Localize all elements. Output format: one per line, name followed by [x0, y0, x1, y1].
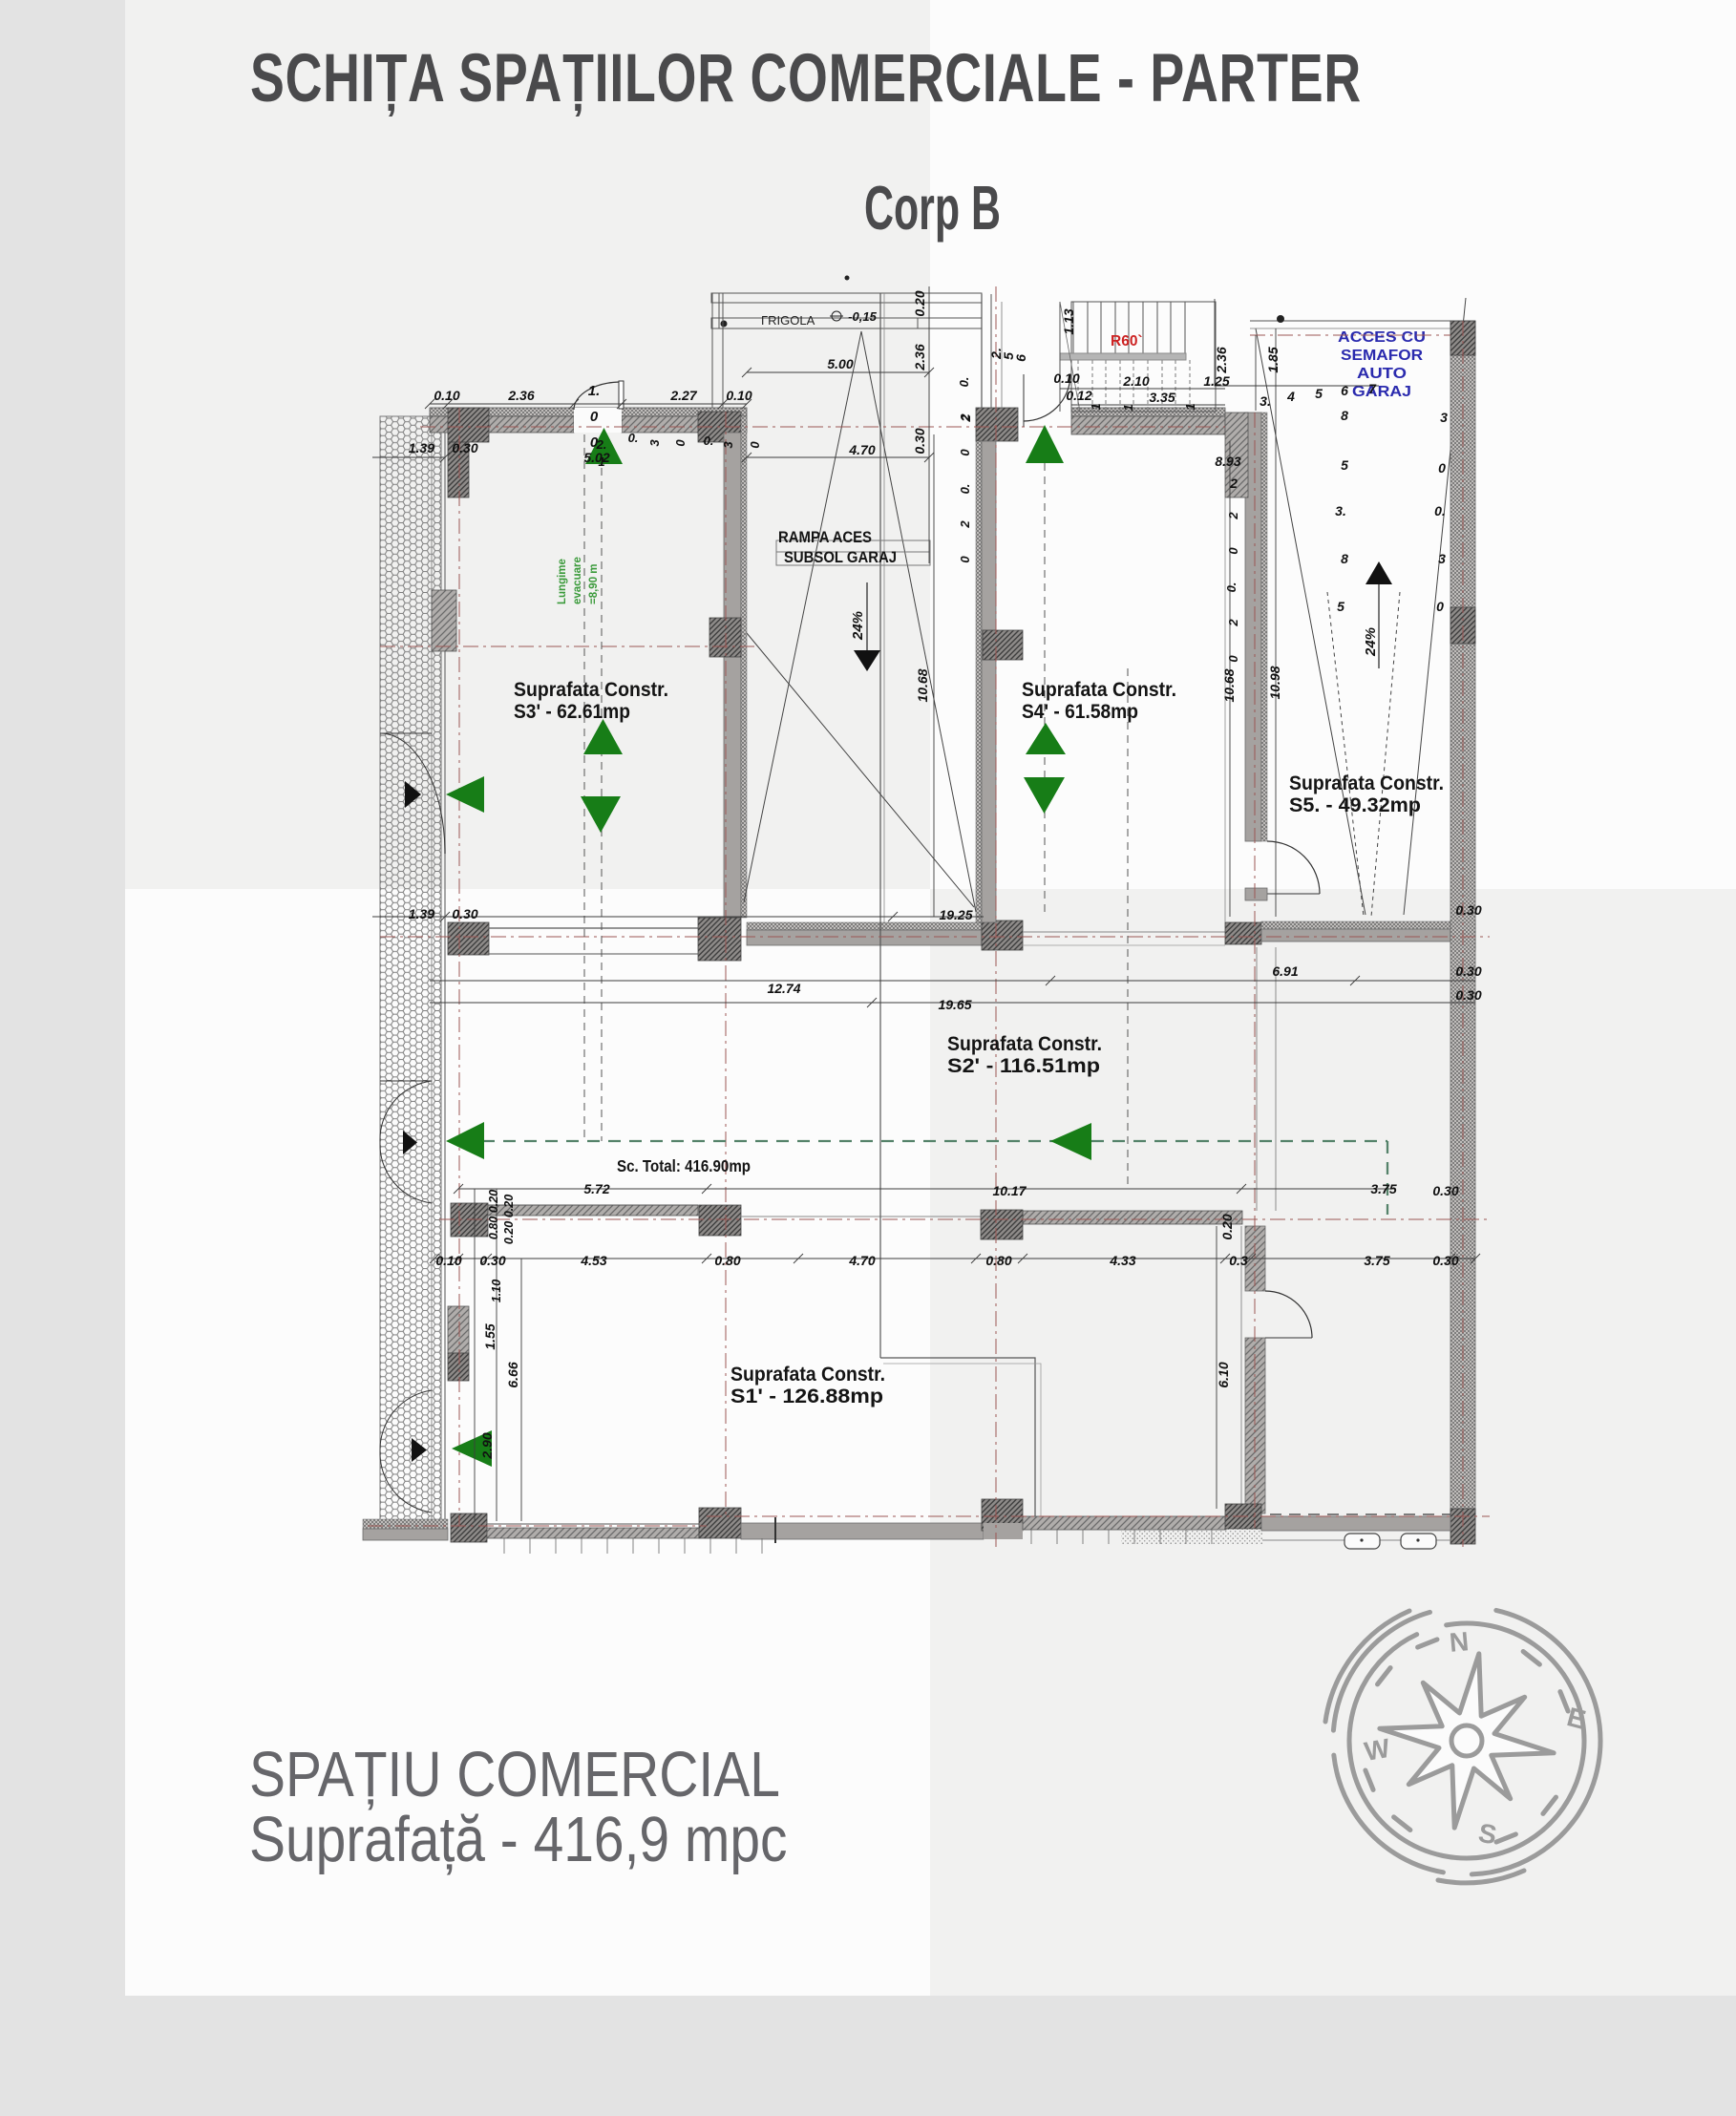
svg-text:5: 5 — [1341, 457, 1348, 473]
svg-text:S4' - 61.58mp: S4' - 61.58mp — [1022, 701, 1138, 723]
svg-text:Sc. Total: 416.90mp: Sc. Total: 416.90mp — [617, 1156, 751, 1175]
svg-text:1: 1 — [1121, 404, 1135, 411]
svg-text:3: 3 — [1438, 551, 1446, 566]
svg-text:N: N — [1449, 1626, 1471, 1658]
svg-text:4.33: 4.33 — [1109, 1253, 1135, 1268]
svg-text:GARAJ: GARAJ — [1352, 384, 1411, 400]
svg-text:0.30: 0.30 — [1455, 963, 1481, 979]
svg-text:8: 8 — [1341, 551, 1348, 566]
svg-text:2: 2 — [958, 520, 972, 529]
svg-text:0.20: 0.20 — [502, 1221, 516, 1244]
svg-text:0.20: 0.20 — [487, 1190, 500, 1213]
svg-text:0.10: 0.10 — [1053, 370, 1079, 386]
svg-text:0.3: 0.3 — [1229, 1253, 1248, 1268]
svg-text:4.53: 4.53 — [580, 1253, 606, 1268]
svg-text:2.36: 2.36 — [507, 388, 534, 403]
svg-text:0.: 0. — [957, 377, 971, 388]
svg-text:1.25: 1.25 — [1203, 373, 1229, 389]
svg-text:6.66: 6.66 — [505, 1362, 520, 1387]
svg-text:0.80: 0.80 — [714, 1253, 740, 1268]
svg-text:5.02: 5.02 — [583, 450, 609, 465]
svg-text:evacuare: evacuare — [572, 557, 583, 604]
svg-text:8: 8 — [1341, 408, 1348, 423]
svg-text:8.93: 8.93 — [1215, 454, 1240, 469]
svg-text:10.98: 10.98 — [1267, 666, 1282, 699]
svg-text:10.68: 10.68 — [915, 668, 930, 702]
svg-text:0.: 0. — [628, 431, 639, 445]
svg-text:2.27: 2.27 — [669, 388, 697, 403]
svg-text:Suprafata Constr.: Suprafata Constr. — [1022, 679, 1176, 701]
svg-text:0.30: 0.30 — [452, 906, 477, 921]
svg-text:0: 0 — [1438, 460, 1446, 476]
svg-text:0.80: 0.80 — [985, 1253, 1011, 1268]
svg-text:0.10: 0.10 — [434, 388, 459, 403]
svg-text:1: 1 — [1089, 403, 1103, 410]
svg-text:0.: 0. — [1224, 582, 1238, 593]
svg-text:1: 1 — [1183, 403, 1197, 410]
svg-text:1.39: 1.39 — [409, 440, 434, 455]
svg-text:1.39: 1.39 — [409, 906, 434, 921]
svg-text:5: 5 — [1337, 599, 1344, 614]
svg-text:1.10: 1.10 — [490, 1280, 503, 1302]
svg-text:4.70: 4.70 — [848, 1253, 875, 1268]
svg-text:2: 2 — [1226, 512, 1240, 520]
svg-text:6: 6 — [1013, 354, 1028, 362]
svg-text:ACCES CU: ACCES CU — [1338, 329, 1426, 346]
svg-text:0: 0 — [673, 439, 688, 447]
svg-text:2.10: 2.10 — [1122, 373, 1149, 389]
svg-text:Lungime: Lungime — [557, 559, 568, 604]
svg-text:3.75: 3.75 — [1364, 1253, 1389, 1268]
svg-text:0.30: 0.30 — [1455, 987, 1481, 1003]
svg-text:24%: 24% — [850, 611, 866, 641]
svg-text:10.17: 10.17 — [992, 1183, 1027, 1198]
svg-text:10.68: 10.68 — [1221, 668, 1237, 702]
svg-text:6.91: 6.91 — [1272, 963, 1298, 979]
svg-text:1.55: 1.55 — [482, 1323, 498, 1349]
svg-text:=8,90 m: =8,90 m — [588, 563, 600, 604]
svg-text:7: 7 — [1368, 381, 1377, 396]
svg-text:0.20: 0.20 — [912, 290, 927, 316]
svg-text:4.70: 4.70 — [848, 442, 875, 457]
svg-text:0.: 0. — [1434, 503, 1446, 518]
svg-text:5.72: 5.72 — [583, 1181, 609, 1196]
svg-text:3: 3 — [721, 441, 735, 449]
svg-text:3: 3 — [1440, 410, 1448, 425]
svg-text:0.30: 0.30 — [479, 1253, 505, 1268]
svg-text:1.85: 1.85 — [1265, 347, 1281, 372]
svg-text:0.20: 0.20 — [502, 1195, 516, 1217]
svg-text:0: 0 — [958, 449, 972, 456]
svg-text:0.10: 0.10 — [726, 388, 752, 403]
svg-text:2.36: 2.36 — [1214, 347, 1229, 373]
svg-text:3.35: 3.35 — [1149, 390, 1175, 405]
svg-text:0.10: 0.10 — [435, 1253, 461, 1268]
svg-text:Suprafata Constr.: Suprafata Constr. — [514, 679, 668, 701]
svg-text:Suprafata Constr.: Suprafata Constr. — [1289, 772, 1444, 794]
svg-text:6.10: 6.10 — [1216, 1362, 1231, 1387]
svg-text:SEMAFOR: SEMAFOR — [1341, 348, 1423, 364]
svg-text:3.: 3. — [1260, 393, 1271, 409]
svg-text:0: 0 — [1436, 599, 1444, 614]
svg-text:19.25: 19.25 — [939, 907, 972, 922]
svg-text:2.36: 2.36 — [912, 344, 927, 370]
svg-text:24%: 24% — [1363, 627, 1379, 657]
svg-text:0.20: 0.20 — [1219, 1214, 1235, 1239]
svg-text:S3' - 62.61mp: S3' - 62.61mp — [514, 701, 630, 723]
svg-text:2: 2 — [1226, 619, 1240, 627]
svg-text:S2' - 116.51mp: S2' - 116.51mp — [947, 1055, 1100, 1077]
svg-text:0.: 0. — [704, 434, 714, 448]
svg-text:3: 3 — [647, 439, 662, 447]
svg-text:3.: 3. — [1335, 503, 1346, 518]
svg-text:1.13: 1.13 — [1061, 308, 1076, 334]
svg-text:0.30: 0.30 — [1432, 1253, 1458, 1268]
svg-text:S1' - 126.88mp: S1' - 126.88mp — [730, 1386, 883, 1407]
svg-text:0.30: 0.30 — [912, 428, 927, 454]
svg-text:0.80: 0.80 — [487, 1217, 500, 1239]
svg-text:RAMPA ACES: RAMPA ACES — [778, 529, 872, 546]
svg-text:5: 5 — [1315, 386, 1323, 401]
svg-text:2.90: 2.90 — [479, 1432, 495, 1459]
svg-text:0.12: 0.12 — [1066, 388, 1091, 403]
svg-text:0: 0 — [1226, 655, 1240, 663]
svg-text:19.65: 19.65 — [938, 997, 971, 1012]
svg-text:S: S — [1476, 1818, 1499, 1851]
svg-text:AUTO: AUTO — [1357, 366, 1407, 382]
svg-text:12.74: 12.74 — [767, 981, 800, 996]
svg-text:SUBSOL GARAJ: SUBSOL GARAJ — [784, 549, 897, 566]
svg-text:4: 4 — [1286, 389, 1295, 404]
svg-text:Suprafata Constr.: Suprafata Constr. — [730, 1364, 885, 1386]
svg-text:Suprafata Constr.: Suprafata Constr. — [947, 1033, 1102, 1055]
svg-text:S5. - 49.32mp: S5. - 49.32mp — [1289, 794, 1421, 816]
svg-text:-0,15: -0,15 — [848, 309, 877, 324]
svg-text:0.30: 0.30 — [1432, 1183, 1458, 1198]
svg-text:0: 0 — [958, 556, 972, 563]
svg-text:5.00: 5.00 — [827, 356, 853, 371]
svg-text:6: 6 — [1341, 383, 1348, 398]
svg-text:0.30: 0.30 — [1455, 902, 1481, 918]
svg-text:R60`: R60` — [1111, 333, 1143, 349]
svg-text:0.: 0. — [958, 484, 972, 495]
svg-text:2: 2 — [1229, 476, 1238, 491]
svg-text:ΓRIGOLA: ΓRIGOLA — [761, 313, 815, 328]
svg-text:0: 0 — [748, 441, 762, 449]
svg-text:0: 0 — [1226, 547, 1240, 555]
svg-text:0.30: 0.30 — [452, 440, 477, 455]
svg-text:3.75: 3.75 — [1370, 1181, 1396, 1196]
svg-text:2: 2 — [958, 413, 972, 422]
svg-text:W: W — [1362, 1733, 1392, 1767]
